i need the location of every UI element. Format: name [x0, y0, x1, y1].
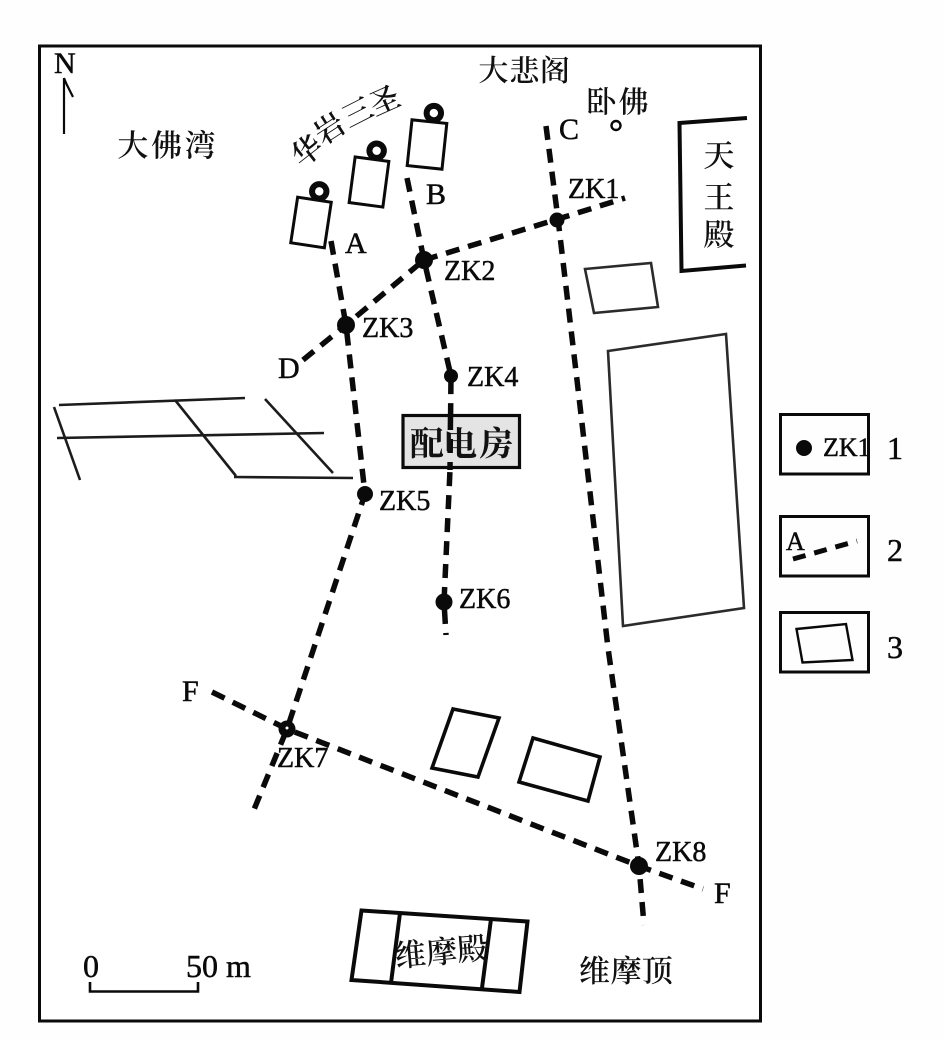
svg-text:ZK6: ZK6	[459, 584, 510, 615]
svg-text:F: F	[714, 877, 731, 910]
svg-text:ZK7: ZK7	[277, 743, 328, 774]
svg-text:ZK1: ZK1	[568, 174, 619, 205]
svg-text:D: D	[278, 352, 300, 385]
svg-text:2: 2	[887, 532, 903, 568]
svg-text:ZK1: ZK1	[823, 433, 871, 462]
svg-text:1: 1	[887, 430, 903, 466]
svg-text:A: A	[786, 527, 805, 556]
svg-text:ZK2: ZK2	[444, 256, 495, 287]
svg-text:N: N	[54, 47, 76, 80]
svg-text:F: F	[182, 675, 199, 708]
svg-text:ZK8: ZK8	[655, 837, 706, 868]
svg-text:C: C	[559, 113, 579, 146]
svg-text:B: B	[426, 178, 446, 211]
svg-text:A: A	[345, 227, 367, 260]
svg-text:0: 0	[83, 948, 99, 984]
svg-text:ZK5: ZK5	[379, 486, 430, 517]
svg-text:50 m: 50 m	[186, 948, 251, 984]
svg-text:ZK4: ZK4	[467, 362, 518, 393]
svg-text:3: 3	[887, 629, 903, 665]
svg-text:ZK3: ZK3	[362, 313, 413, 344]
